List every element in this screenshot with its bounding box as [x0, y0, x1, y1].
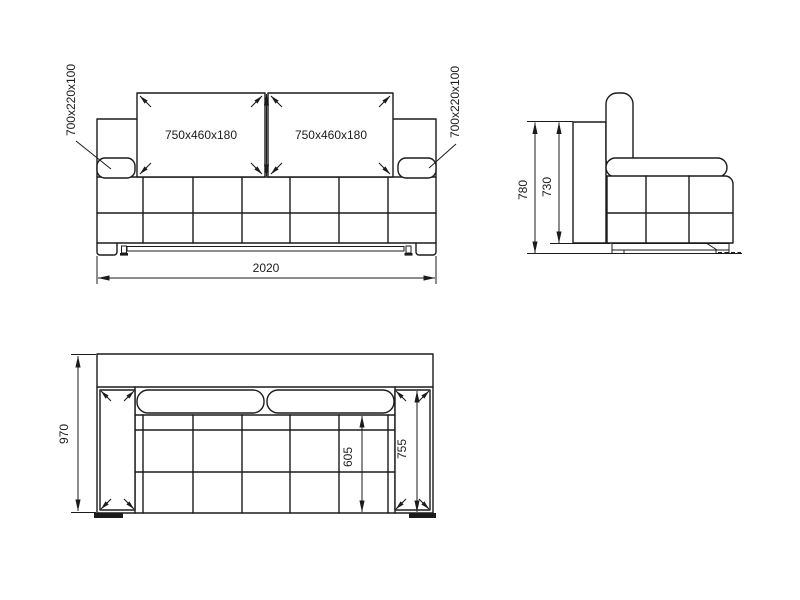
height-overall-label: 780	[516, 180, 530, 200]
plan-left-armrest	[100, 390, 135, 510]
side-left-foot	[612, 250, 624, 254]
plan-outline	[97, 354, 433, 513]
side-armrest-cushion	[606, 158, 727, 177]
front-view: 750x460x180 750x460x180 700x220x100 700x…	[64, 64, 462, 284]
side-base	[612, 244, 741, 254]
plan-back-cushion-left	[137, 390, 264, 413]
front-left-bracket	[122, 246, 127, 253]
front-base-rail	[127, 247, 404, 252]
side-view: 780 730	[516, 93, 742, 254]
armrest-left-leader	[76, 141, 111, 169]
front-left-foot	[97, 243, 117, 255]
plan-back-cushion-right	[267, 390, 394, 413]
side-backrest-panel	[573, 122, 606, 243]
side-mechanism-line	[707, 244, 717, 251]
front-right-bracket	[406, 246, 411, 253]
top-view: 605 755 970	[57, 354, 436, 518]
drawing-canvas: 750x460x180 750x460x180 700x220x100 700x…	[0, 0, 800, 600]
back-cushion-left-label: 750x460x180	[165, 128, 237, 142]
side-body	[607, 176, 733, 243]
plan-right-foot-bar	[409, 513, 436, 518]
front-seat-grid	[97, 177, 436, 243]
front-right-armrest-cushion	[398, 158, 436, 178]
width-dimension: 2020	[97, 256, 436, 284]
front-left-armrest-cushion	[97, 158, 135, 178]
frame-height-label: 730	[540, 177, 554, 197]
armrest-right-label: 700x220x100	[448, 66, 462, 138]
plan-left-foot-bar	[94, 513, 123, 518]
depth-overall-label: 970	[57, 424, 71, 444]
front-right-foot	[416, 243, 436, 255]
seat-depth-label: 605	[341, 447, 355, 467]
width-dimension-label: 2020	[253, 261, 280, 275]
armrest-right-leader	[429, 144, 456, 168]
back-cushion-right-label: 750x460x180	[295, 128, 367, 142]
armrest-left-label: 700x220x100	[64, 64, 78, 136]
depth-dimension: 970	[57, 355, 96, 513]
front-base	[97, 243, 436, 256]
armrest-length-label: 755	[395, 439, 409, 459]
sofa-technical-drawing: 750x460x180 750x460x180 700x220x100 700x…	[0, 0, 800, 600]
